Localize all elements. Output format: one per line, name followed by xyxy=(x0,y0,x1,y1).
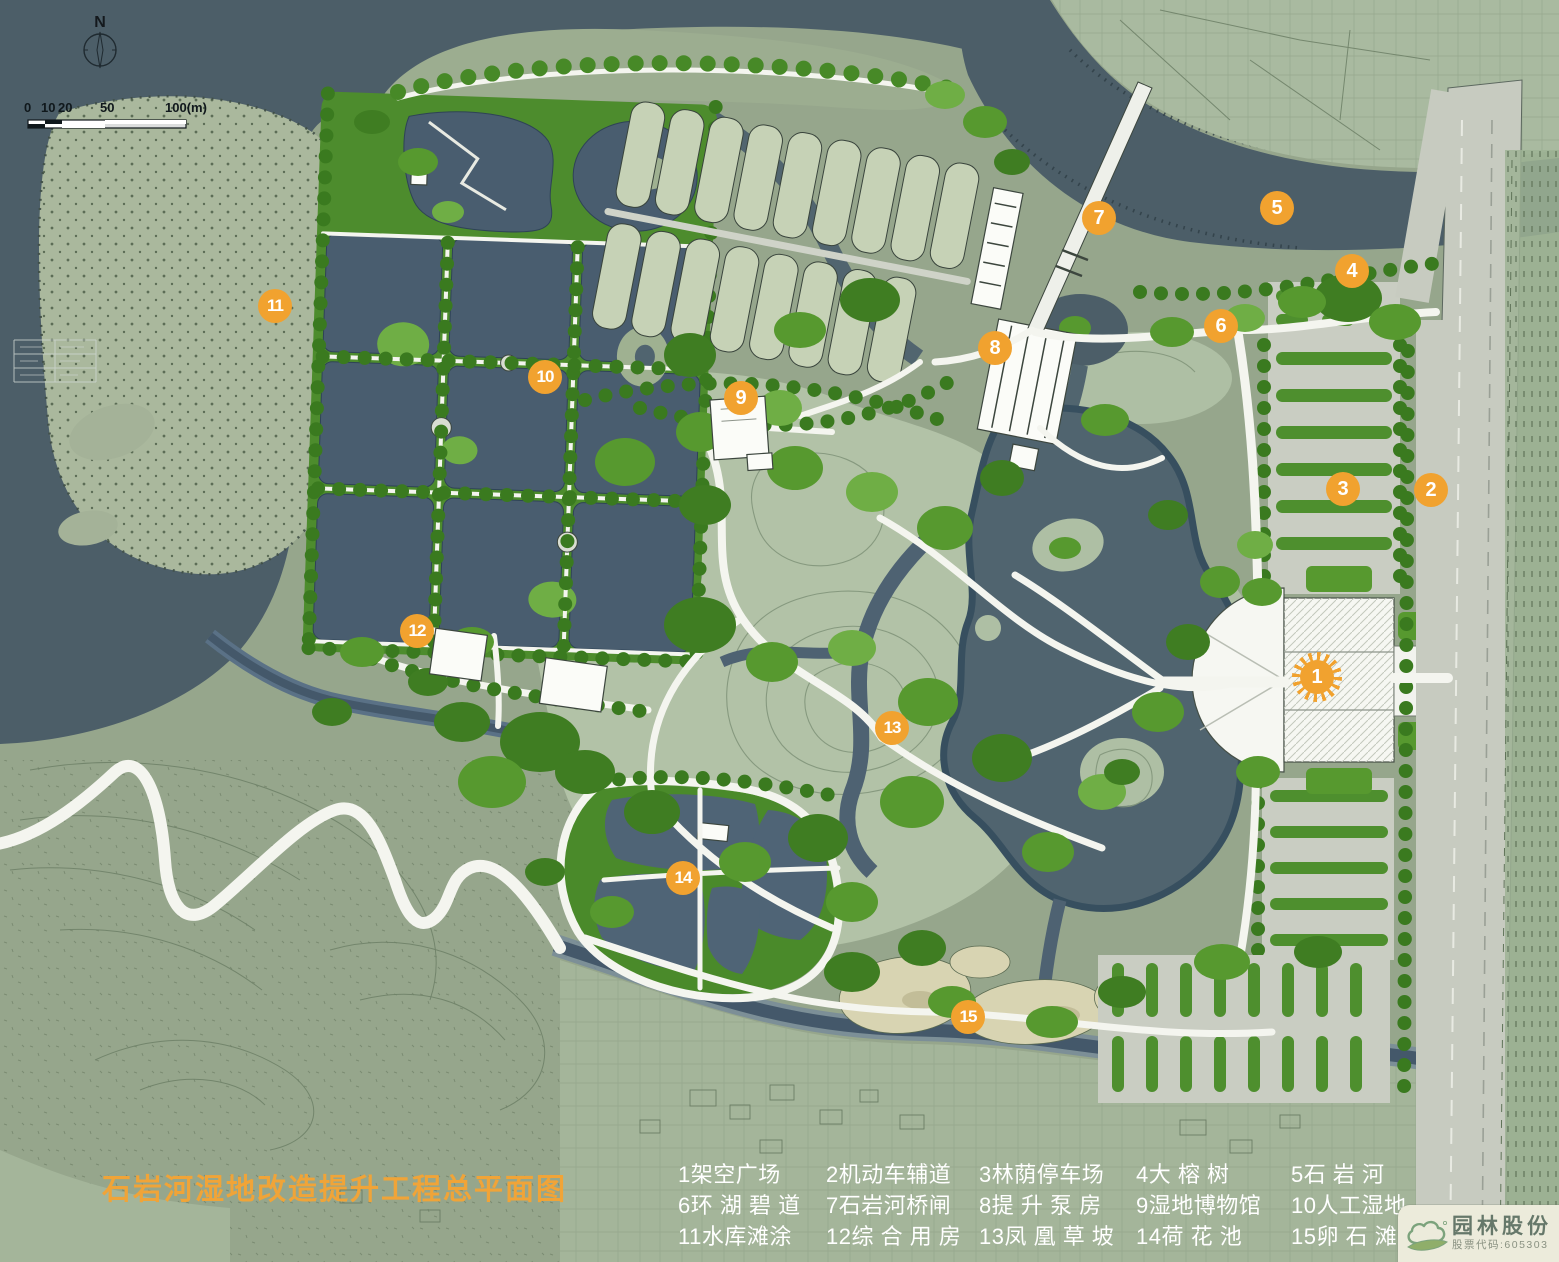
plan-title: 石岩河湿地改造提升工程总平面图 xyxy=(102,1166,567,1208)
scale-label-100(m): 100(m) xyxy=(165,100,207,115)
scale-label-10: 10 xyxy=(41,100,55,115)
legend-item-1: 1架空广场 xyxy=(678,1159,826,1190)
legend-item-7: 7石岩河桥闸 xyxy=(826,1190,979,1221)
scale-label-20: 20 xyxy=(58,100,72,115)
legend-item-13: 13凤 凰 草 坡 xyxy=(979,1221,1136,1252)
logo-stock-code: 股票代码:605303 xyxy=(1452,1239,1552,1252)
legend-item-8: 8提 升 泵 房 xyxy=(979,1190,1136,1221)
legend-item-14: 14荷 花 池 xyxy=(1136,1221,1291,1252)
legend-item-9: 9湿地博物馆 xyxy=(1136,1190,1291,1221)
parking-south xyxy=(1258,778,1394,960)
logo-company-name: 园林股份 xyxy=(1452,1215,1552,1239)
legend-item-5: 5石 岩 河 xyxy=(1291,1159,1411,1190)
legend: 1架空广场2机动车辅道3林荫停车场4大 榕 树5石 岩 河6环 湖 碧 道7石岩… xyxy=(678,1159,1411,1252)
company-logo: 园林股份 股票代码:605303 xyxy=(1398,1205,1559,1262)
garden-cloud-logo-icon xyxy=(1404,1216,1450,1256)
legend-item-11: 11水库滩涂 xyxy=(678,1221,826,1252)
legend-item-4: 4大 榕 树 xyxy=(1136,1159,1291,1190)
legend-item-10: 10人工湿地 xyxy=(1291,1190,1411,1221)
legend-item-2: 2机动车辅道 xyxy=(826,1159,979,1190)
legend-item-6: 6环 湖 碧 道 xyxy=(678,1190,826,1221)
legend-item-3: 3林荫停车场 xyxy=(979,1159,1136,1190)
scale-label-50: 50 xyxy=(100,100,114,115)
legend-item-15: 15卵 石 滩 xyxy=(1291,1221,1411,1252)
site-plan-map: N 0102050100(m) xyxy=(0,0,1559,1262)
site-plan-sheet: N 0102050100(m) 123456789101112131415 石岩… xyxy=(0,0,1559,1262)
legend-item-12: 12综 合 用 房 xyxy=(826,1221,979,1252)
scale-label-0: 0 xyxy=(24,100,31,115)
compass-label: N xyxy=(94,14,106,31)
constructed-wetland xyxy=(302,91,717,664)
